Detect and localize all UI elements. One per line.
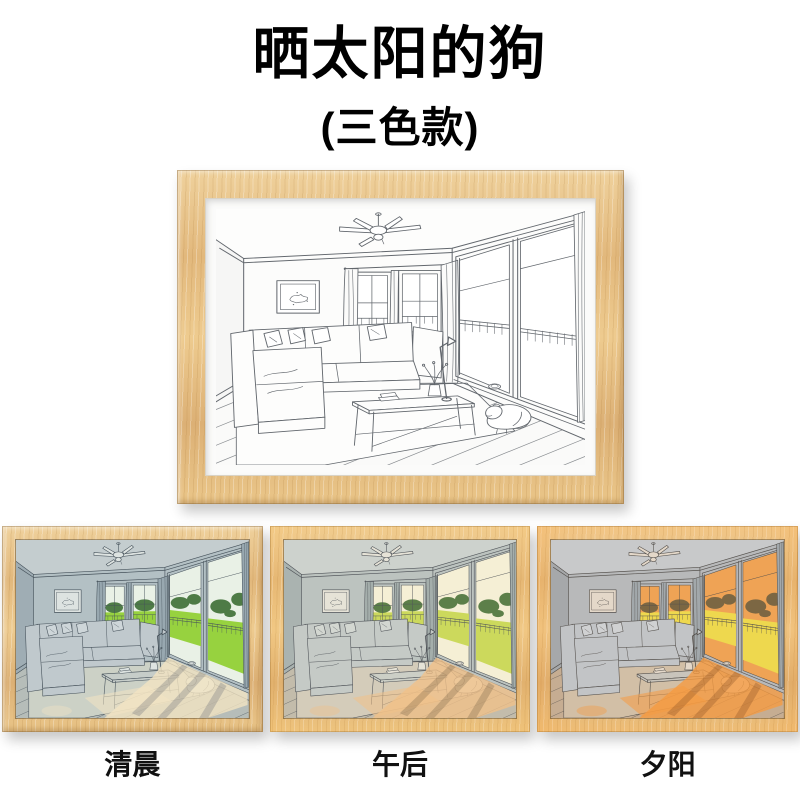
artwork-afternoon-light [284,540,517,718]
dog-bowl [723,662,731,666]
variant-frame-sunset [537,526,798,732]
artwork-morning-light [16,540,249,718]
artwork-sunset-light [551,540,784,718]
wall-art [54,590,81,613]
variant-sunset: 夕阳 [537,526,798,783]
product-title: 晒太阳的狗 [0,8,800,90]
variant-label-sunset: 夕阳 [537,743,798,783]
living-room-scene [284,540,517,718]
variant-frame-morning [2,526,263,732]
dog-bowl [456,662,464,666]
living-room-scene [16,540,249,718]
variant-afternoon: 午后 [270,526,531,783]
product-subtitle: (三色款) [0,94,800,155]
wall-art [322,590,349,613]
dog-bowl [188,662,196,666]
variant-label-afternoon: 午后 [270,743,531,783]
wall-art [276,281,318,313]
dog-bowl [488,384,500,389]
main-product-frame [177,170,624,504]
wall-art [590,590,617,613]
living-room-scene [551,540,784,718]
variant-label-morning: 清晨 [2,743,263,783]
product-image: 晒太阳的狗 (三色款) [0,8,800,808]
variant-morning: 清晨 [2,526,263,783]
color-variants-row: 清晨 [0,526,800,783]
variant-frame-afternoon [270,526,531,732]
artwork-line-drawing [216,209,585,465]
frame-mat [205,198,596,476]
living-room-scene [216,209,585,465]
